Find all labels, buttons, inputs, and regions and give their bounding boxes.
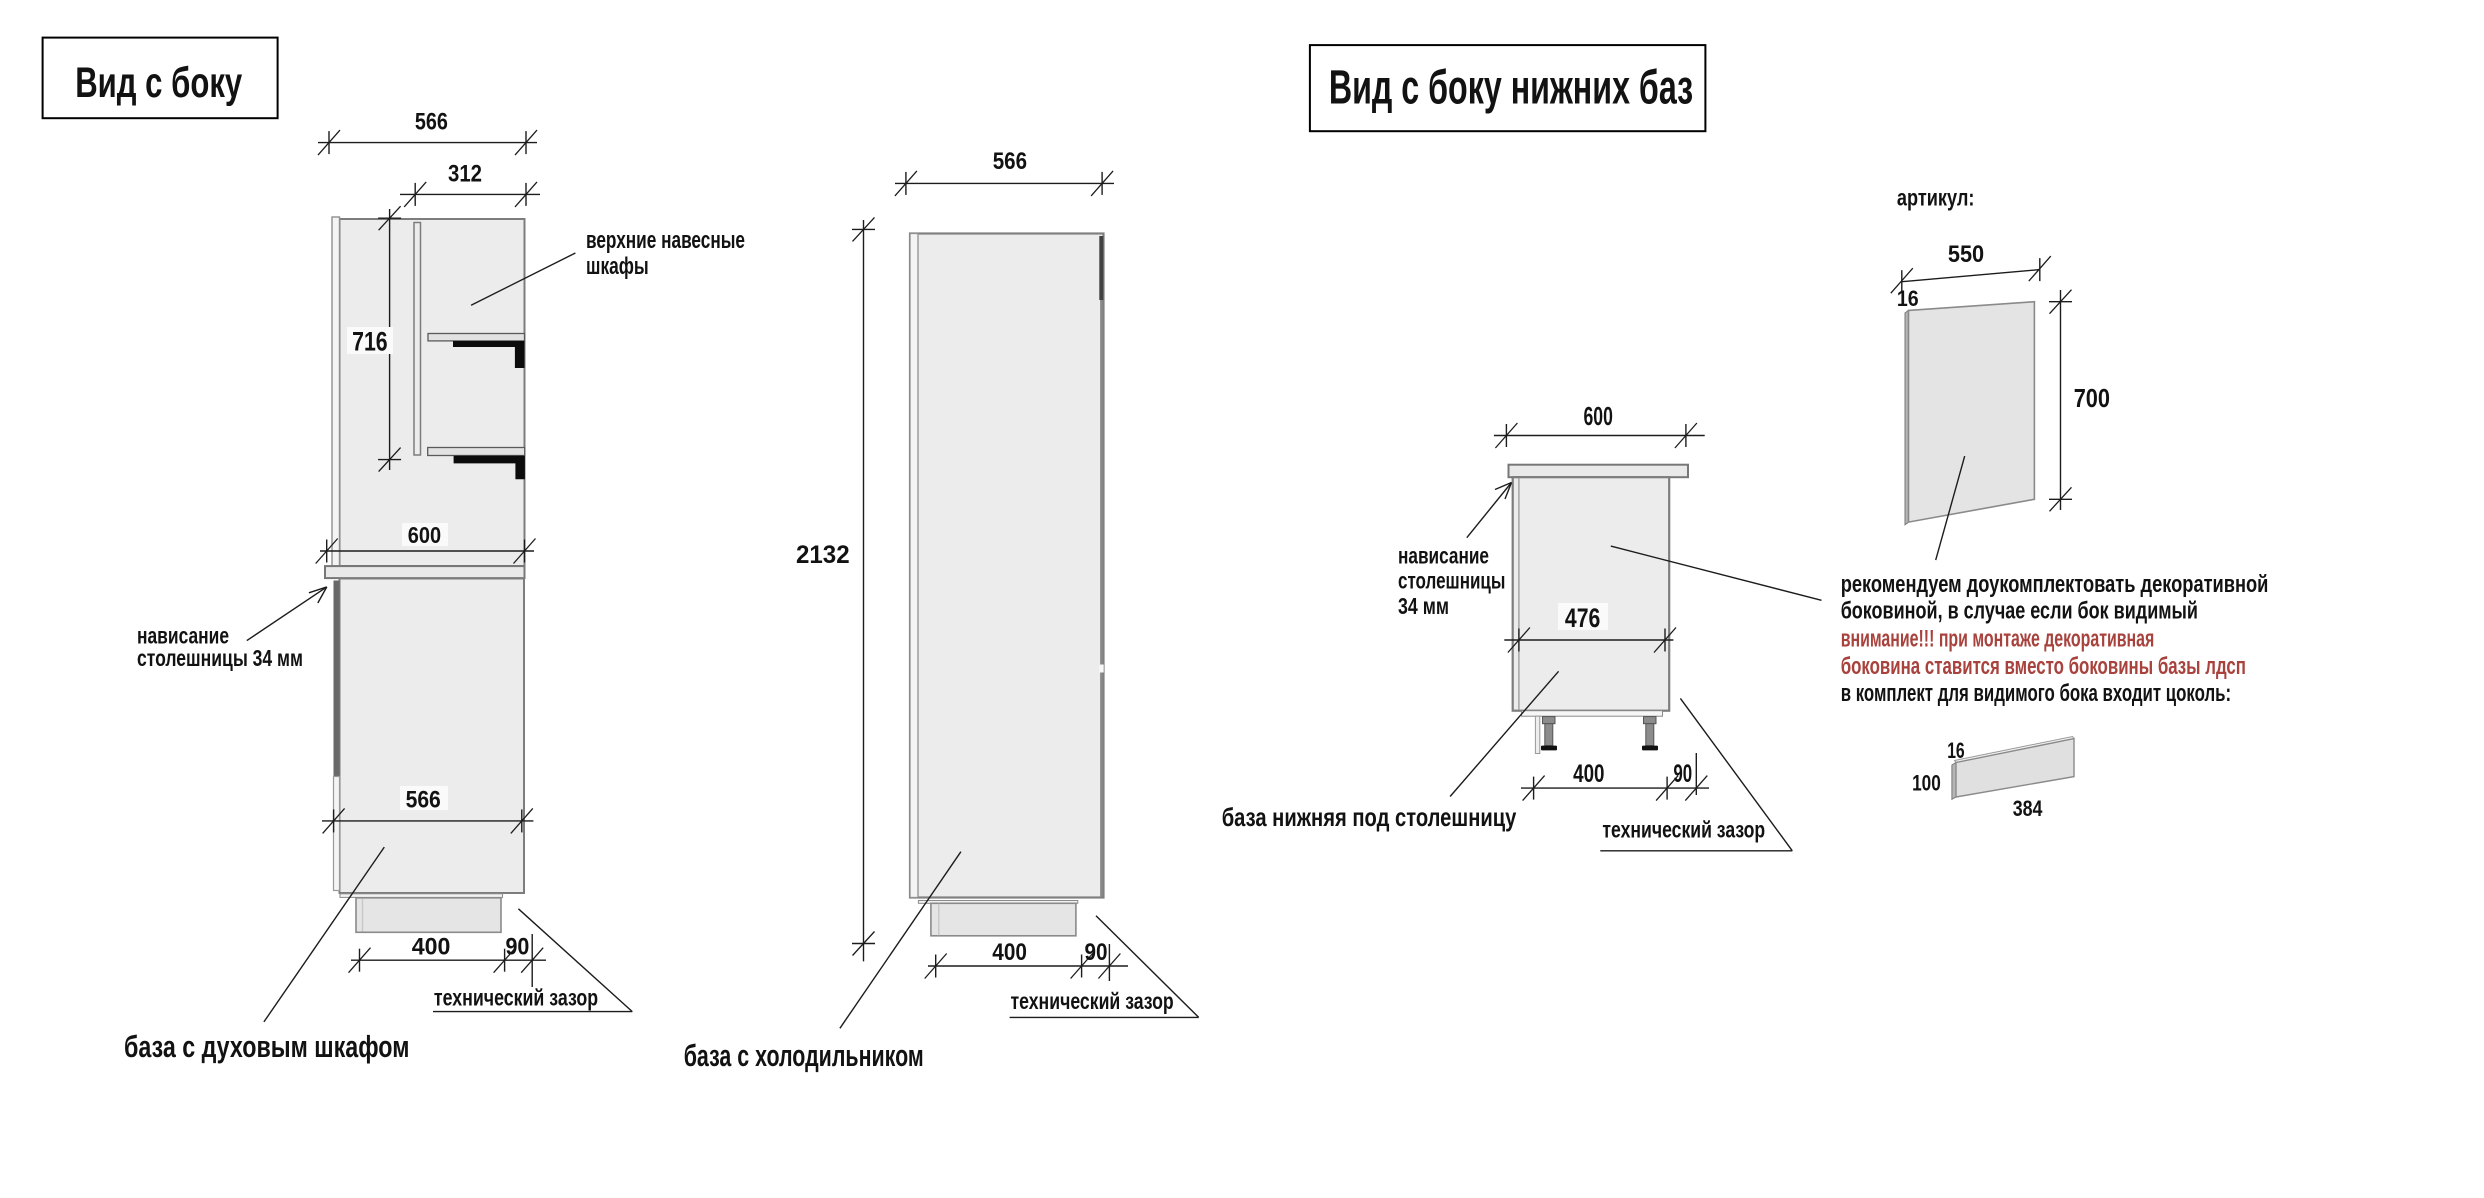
svg-text:16: 16 [1947, 738, 1965, 763]
svg-text:база с духовым шкафом: база с духовым шкафом [124, 1029, 409, 1064]
svg-text:Вид с боку нижних баз: Вид с боку нижних баз [1329, 62, 1693, 115]
svg-text:100: 100 [1912, 771, 1941, 796]
svg-text:2132: 2132 [796, 541, 850, 569]
svg-text:шкафы: шкафы [586, 253, 649, 280]
svg-text:90: 90 [1085, 939, 1108, 966]
svg-text:Вид с боку: Вид с боку [75, 59, 242, 107]
svg-text:550: 550 [1948, 241, 1984, 268]
svg-text:технический зазор: технический зазор [1602, 817, 1765, 843]
svg-text:технический зазор: технический зазор [434, 985, 598, 1011]
svg-text:400: 400 [412, 934, 451, 961]
svg-text:столешницы 34 мм: столешницы 34 мм [137, 645, 303, 671]
svg-text:566: 566 [415, 109, 448, 136]
svg-text:312: 312 [448, 161, 482, 188]
svg-text:рекомендуем доукомплектовать д: рекомендуем доукомплектовать декоративно… [1841, 571, 2269, 598]
svg-text:верхние навесные: верхние навесные [586, 227, 745, 254]
svg-text:столешницы: столешницы [1398, 568, 1505, 594]
svg-text:600: 600 [1584, 401, 1613, 431]
svg-text:476: 476 [1565, 603, 1600, 633]
svg-text:база нижняя под столешницу: база нижняя под столешницу [1222, 802, 1517, 832]
svg-text:база с холодильником: база с холодильником [684, 1038, 924, 1073]
svg-text:34 мм: 34 мм [1398, 593, 1449, 619]
svg-text:566: 566 [406, 787, 441, 814]
svg-text:600: 600 [408, 522, 441, 548]
svg-text:400: 400 [1573, 760, 1604, 788]
svg-text:384: 384 [2013, 796, 2043, 821]
svg-text:нависание: нависание [1398, 543, 1489, 569]
svg-text:90: 90 [1673, 760, 1692, 788]
svg-text:400: 400 [992, 939, 1027, 966]
svg-text:в комплект для видимого бока в: в комплект для видимого бока входит цоко… [1841, 680, 2231, 707]
svg-text:технический зазор: технический зазор [1011, 988, 1174, 1014]
svg-text:боковиной, в случае если бок в: боковиной, в случае если бок видимый [1841, 598, 2198, 625]
svg-text:внимание!!! при монтаже декора: внимание!!! при монтаже декоративная [1841, 625, 2155, 652]
svg-text:566: 566 [993, 148, 1027, 175]
svg-text:артикул:: артикул: [1897, 185, 1975, 211]
svg-text:боковина ставится вместо боков: боковина ставится вместо боковины базы л… [1841, 653, 2246, 680]
svg-text:16: 16 [1897, 286, 1919, 311]
svg-text:716: 716 [352, 327, 388, 357]
svg-text:700: 700 [2074, 383, 2110, 413]
svg-text:90: 90 [505, 934, 529, 961]
